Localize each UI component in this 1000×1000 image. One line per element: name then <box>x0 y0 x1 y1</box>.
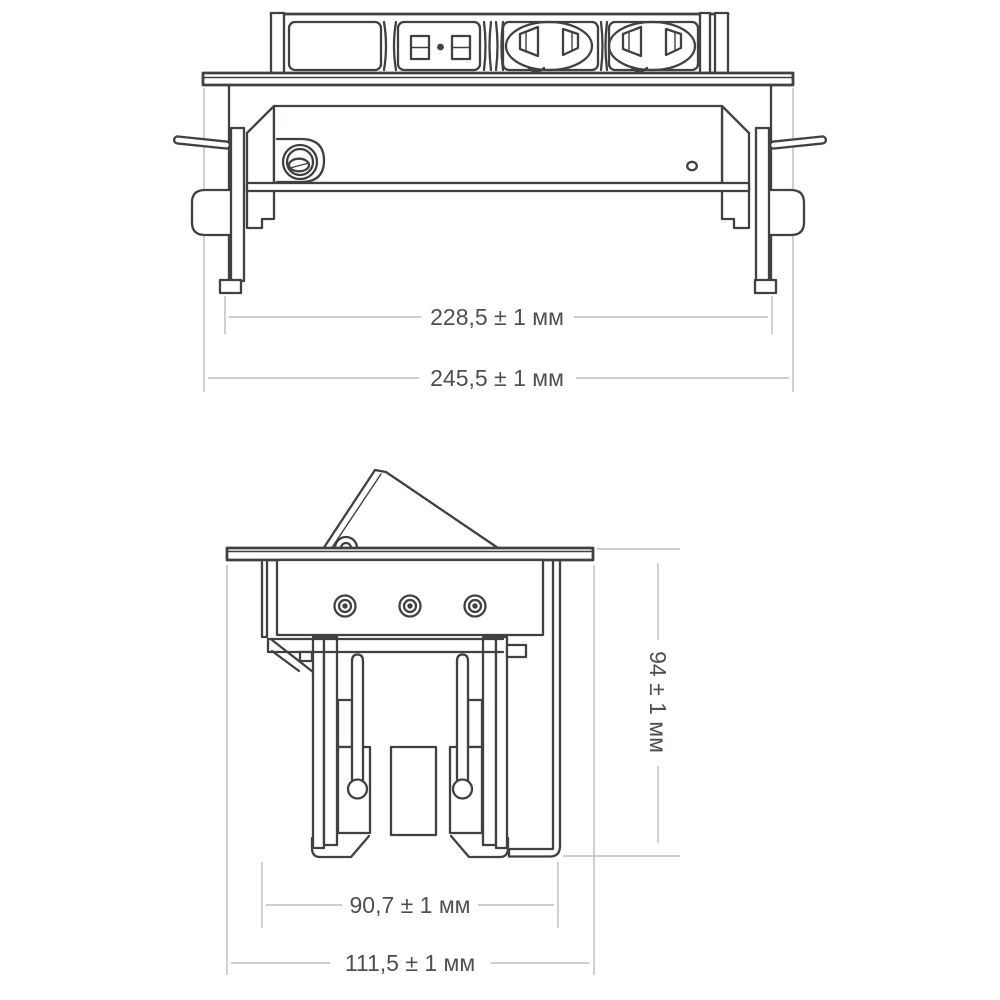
clamp-leg <box>324 637 337 845</box>
usb-charger-module <box>398 22 480 70</box>
housing-box <box>277 560 543 635</box>
side-view: 94 ± 1 мм 90,7 ± 1 мм 111,5 ± 1 мм <box>227 470 680 976</box>
shell-wall <box>262 560 267 637</box>
dimension-side-mount-width: 90,7 ± 1 мм <box>266 892 554 918</box>
latch-tab <box>507 645 526 657</box>
dimension-label: 245,5 ± 1 мм <box>430 365 564 391</box>
strip-right-post <box>715 13 728 73</box>
mounting-plate <box>203 73 793 85</box>
guide-window <box>468 700 482 747</box>
dimension-front-mount-width: 228,5 ± 1 мм <box>229 304 768 330</box>
clamp-foot <box>220 280 241 293</box>
adjusting-pin <box>348 655 367 799</box>
clamp-leg <box>483 637 496 845</box>
clamp-pin <box>174 136 230 149</box>
socket-strip <box>271 13 728 73</box>
unit-body <box>274 106 722 183</box>
dimension-side-plate-width: 111,5 ± 1 мм <box>231 950 589 976</box>
clamp-leg <box>231 128 244 281</box>
side-bracket <box>247 106 274 228</box>
clamp-knob <box>192 190 232 235</box>
blank-module <box>289 22 381 70</box>
clamp-leg <box>313 637 324 848</box>
dimension-label: 111,5 ± 1 мм <box>345 950 475 976</box>
clamp-leg <box>496 637 507 848</box>
adjusting-pin <box>453 655 472 799</box>
clamp-rail <box>268 639 503 652</box>
dimension-label: 94 ± 1 мм <box>645 651 671 753</box>
corner-brace <box>272 640 313 672</box>
mounting-plate-side <box>227 548 593 560</box>
center-block <box>391 747 436 835</box>
side-bracket <box>722 106 749 228</box>
socket-module <box>503 22 598 72</box>
dimension-label: 90,7 ± 1 мм <box>350 892 471 918</box>
front-view: 228,5 ± 1 мм 245,5 ± 1 мм <box>174 13 826 392</box>
dimension-side-height: 94 ± 1 мм <box>645 563 671 843</box>
technical-drawing: 228,5 ± 1 мм 245,5 ± 1 мм <box>0 0 1000 1000</box>
guide-window <box>338 700 352 747</box>
strip-left-post <box>271 13 284 73</box>
dimension-label: 228,5 ± 1 мм <box>430 304 564 330</box>
clamp-pin <box>770 136 826 149</box>
dimension-front-plate-width: 245,5 ± 1 мм <box>208 365 789 391</box>
usb-led-dot <box>437 44 444 51</box>
strip-right-post <box>700 13 710 73</box>
clamp-leg <box>756 128 769 281</box>
body-bottom-rail <box>247 183 749 191</box>
clamp-foot <box>755 280 776 293</box>
socket-module <box>609 22 698 72</box>
